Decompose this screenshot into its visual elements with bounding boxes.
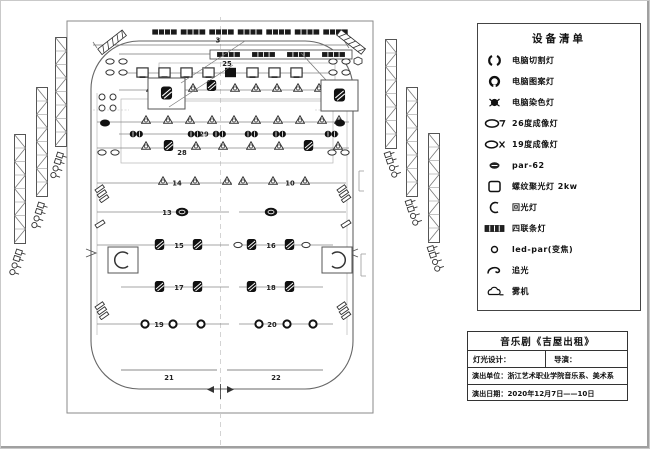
- fixture-bar-29: 29: [119, 131, 339, 139]
- svg-text:20: 20: [267, 321, 277, 329]
- title-block: 音乐剧《吉屋出租》 灯光设计： 导演： 演出单位：浙江艺术职业学院音乐系、美术系…: [467, 331, 628, 401]
- svg-text:10: 10: [285, 180, 295, 188]
- follow-spot-icon: [478, 264, 512, 277]
- fixture-bar-b: [97, 116, 349, 123]
- left-wall-fixtures: [93, 59, 129, 320]
- profile-26-deg-icon: [478, 117, 512, 130]
- side-truss-right-2: [405, 88, 422, 226]
- profile-19-deg-icon: [478, 138, 512, 151]
- svg-text:28: 28: [177, 149, 187, 157]
- computer-pattern-light-icon: [478, 75, 512, 88]
- svg-text:17: 17: [174, 284, 184, 292]
- side-truss-right-1: [384, 40, 401, 178]
- side-truss-right-3: [427, 134, 444, 272]
- svg-text:21: 21: [164, 374, 174, 382]
- svg-text:22: 22: [271, 374, 281, 382]
- legend-item: 26度成像灯: [478, 113, 640, 134]
- stage-plan-drawing: 3 25: [1, 1, 461, 449]
- side-truss-left-1: [50, 38, 67, 180]
- equipment-legend: 设备清单 电脑切割灯 电脑图案灯 电脑染色灯 26度成像灯: [477, 23, 641, 311]
- legend-item: 电脑图案灯: [478, 71, 640, 92]
- legend-item: 追光: [478, 260, 640, 281]
- svg-text:15: 15: [174, 242, 184, 250]
- four-cell-strip-icon: [478, 222, 512, 235]
- fixture-bar-28: 28: [97, 140, 349, 157]
- company-label: 演出单位：浙江艺术职业学院音乐系、美术系: [468, 368, 627, 385]
- svg-text:3: 3: [216, 37, 221, 45]
- svg-text:14: 14: [172, 180, 182, 188]
- top-left-hatch-stick: [98, 30, 127, 55]
- director-label: 导演：: [546, 351, 627, 367]
- legend-item: 四联条灯: [478, 218, 640, 239]
- svg-text:18: 18: [266, 284, 276, 292]
- stage-outline: [86, 41, 358, 399]
- fog-machine-icon: [478, 285, 512, 298]
- computer-cut-light-icon: [478, 54, 512, 67]
- legend-item: 螺纹聚光灯 2kw: [478, 176, 640, 197]
- svg-text:16: 16: [266, 242, 276, 250]
- legend-item: 电脑染色灯: [478, 92, 640, 113]
- side-truss-left-3: [9, 135, 26, 277]
- date-label: 演出日期：2020年12月7日——10日: [468, 385, 627, 402]
- fresnel-2kw-icon: [478, 180, 512, 193]
- svg-text:29: 29: [199, 131, 209, 139]
- beam-light-icon: [478, 201, 512, 214]
- fixture-bar-19-20: 19 20: [97, 320, 333, 329]
- fixture-bar-13: 13: [97, 208, 346, 217]
- legend-item: par-62: [478, 155, 640, 176]
- designer-director-row: 灯光设计： 导演：: [468, 351, 627, 368]
- fixture-bar-17-18: 17 18: [121, 281, 323, 292]
- fixture-bar-21-22: 21 22: [121, 370, 323, 382]
- svg-text:19: 19: [154, 321, 164, 329]
- legend-title: 设备清单: [478, 31, 640, 46]
- cyc-strip-row: [152, 29, 347, 34]
- corner-box-right: [321, 80, 358, 111]
- side-truss-left-2: [31, 88, 48, 230]
- follow-spot-left: [108, 247, 138, 273]
- legend-item: 19度成像灯: [478, 134, 640, 155]
- legend-item: led-par(变焦): [478, 239, 640, 260]
- svg-text:13: 13: [162, 209, 172, 217]
- show-title: 音乐剧《吉屋出租》: [468, 332, 627, 351]
- follow-spot-right: [322, 247, 352, 273]
- legend-item: 回光灯: [478, 197, 640, 218]
- right-hexagon-mark: [354, 57, 362, 65]
- par62-icon: [478, 159, 512, 172]
- legend-item: 雾机: [478, 281, 640, 302]
- dimension-line-3: 3: [93, 37, 349, 49]
- fixture-bar-14-10: 14 10: [97, 177, 346, 188]
- led-par-zoom-icon: [478, 243, 512, 256]
- computer-wash-light-icon: [478, 96, 512, 109]
- legend-item: 电脑切割灯: [478, 50, 640, 71]
- lighting-designer-label: 灯光设计：: [468, 351, 546, 367]
- lighting-plot-sheet: 3 25: [0, 0, 650, 449]
